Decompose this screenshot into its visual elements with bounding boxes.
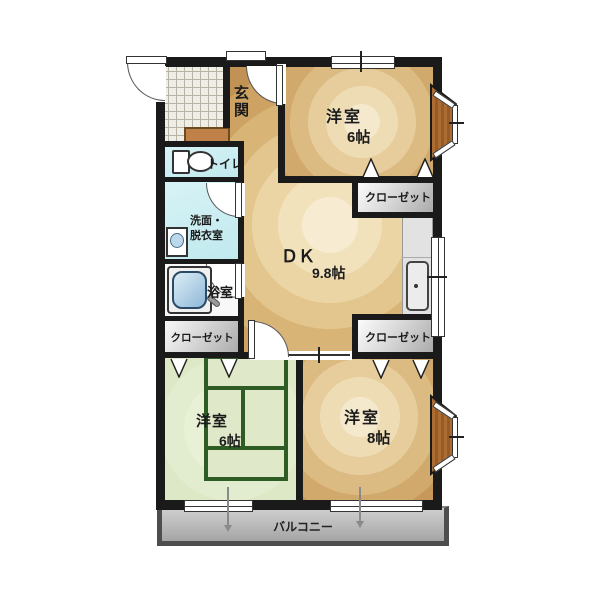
bathroom-door-leaf (235, 263, 242, 299)
west-room-bottom-left-label: 洋室 (196, 410, 228, 431)
tatami-line (208, 386, 284, 390)
wall-outer-left (156, 57, 165, 510)
wall-outer-top (156, 57, 442, 67)
folding-door-icon (362, 158, 380, 178)
west-room-bottom-right-size: 8帖 (367, 427, 390, 448)
bay-window-tick (449, 436, 464, 438)
wall-genkan-tile (223, 60, 230, 128)
folding-door-icon (220, 358, 238, 378)
wall-toilet-bottom (156, 177, 244, 182)
sliding-door-tick (318, 347, 320, 363)
window-tick (360, 51, 362, 72)
folding-door-icon (170, 358, 188, 378)
west-room-bottom-right-label: 洋室 (344, 404, 380, 428)
window-8jo-room (330, 500, 423, 512)
bay-window-tick (449, 122, 464, 124)
west-room-top-label: 洋室 (326, 103, 362, 127)
window-green-room (184, 500, 253, 512)
entrance-door-leaf (126, 56, 167, 64)
bay-window-top-glass (452, 105, 458, 144)
closet-left-label: クローゼット (160, 321, 244, 353)
west-room-top-size: 6帖 (347, 126, 370, 147)
closet-top-right-label: クローゼット (358, 182, 438, 212)
westroom-top-door-leaf (276, 65, 283, 106)
washroom-door-leaf (235, 182, 242, 218)
washbasin-icon-bowl (170, 233, 184, 248)
wall-closet-tr-bottom (352, 212, 442, 218)
window-genkan-top (226, 51, 266, 61)
dk-size: 9.8帖 (312, 263, 345, 283)
toilet-label: トイレ (207, 155, 243, 172)
floor-plan: 玄関 洋室 6帖 クローゼット トイレ 洗面・ 脱衣室 浴室 ＤＫ 9.8帖 ク… (0, 0, 600, 600)
folding-door-icon (372, 359, 390, 379)
folding-door-icon (412, 359, 430, 379)
window-westroom-top (331, 56, 395, 69)
genkan-label: 玄関 (230, 85, 251, 119)
balcony-label: バルコニー (157, 518, 449, 535)
balcony-arrow (359, 487, 361, 521)
folding-door-icon (416, 158, 434, 178)
kitchen-counter-divider (402, 257, 433, 258)
washroom-label: 洗面・ 脱衣室 (190, 214, 223, 244)
wall-bedroom-divider (296, 352, 303, 508)
wall-toilet-top (156, 141, 244, 147)
closet-bottom-right-label: クローゼット (358, 320, 438, 353)
entrance-door-arc (127, 62, 165, 101)
washroom-label-line1: 洗面・ (190, 215, 223, 227)
dk-label: ＤＫ (281, 242, 315, 267)
bathtub-icon-tub (172, 271, 207, 309)
washroom-label-line2: 脱衣室 (190, 230, 223, 242)
tatami-line (241, 386, 245, 450)
west-room-bottom-left-size: 6帖 (219, 431, 241, 451)
window-tick (427, 276, 447, 278)
green-room-door-leaf (248, 320, 255, 359)
bathroom-label: 浴室 (207, 282, 233, 301)
kitchen-faucet (414, 284, 418, 288)
